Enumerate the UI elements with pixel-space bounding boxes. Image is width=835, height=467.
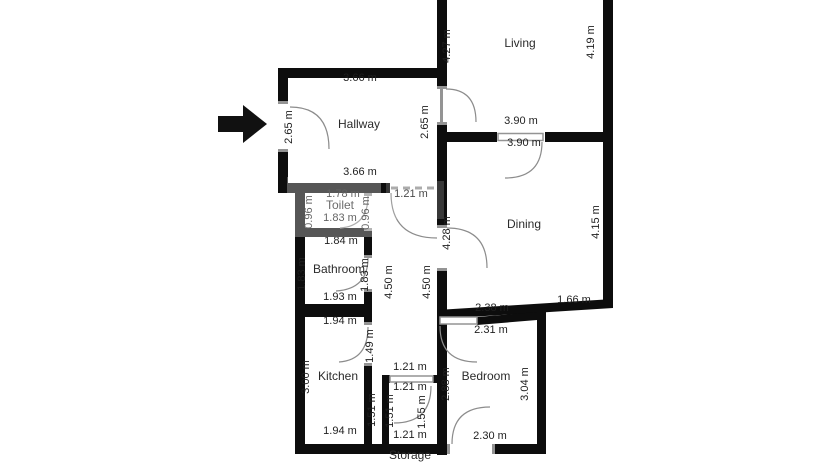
room-label-dining: Dining: [507, 217, 541, 231]
dimension-label: 4.50 m: [421, 265, 433, 299]
entrance-door-jamb: [278, 149, 288, 152]
dimension-label: 1.21 m: [393, 361, 427, 373]
bathroom-door-jamb: [364, 255, 372, 258]
dimension-label: 1.66 m: [557, 294, 591, 306]
dimension-label: 3.66 m: [343, 166, 377, 178]
living-door-jamb: [437, 86, 447, 89]
dimension-label: 2.31 m: [474, 324, 508, 336]
watermark: [287, 177, 444, 237]
dimension-label: 2.65 m: [419, 105, 431, 139]
dimension-label: 1.93 m: [323, 291, 357, 303]
dimension-label: 2.88 m: [440, 367, 452, 401]
dimension-label: 2.65 m: [283, 110, 295, 144]
floor-plan-page: 3.66 m2.65 m2.65 m3.66 m4.27 m4.19 m3.90…: [0, 0, 835, 467]
living-door-arc: [446, 89, 476, 122]
dimension-label: 3.90 m: [507, 137, 541, 149]
dimension-label: 1.94 m: [323, 425, 357, 437]
dimension-label: 2.38 m: [475, 302, 509, 314]
dimension-label: 4.27 m: [441, 29, 453, 63]
floor-plan: 3.66 m2.65 m2.65 m3.66 m4.27 m4.19 m3.90…: [0, 0, 835, 467]
room-label-storage: Storage: [389, 448, 431, 462]
dimension-label: 1.55 m: [416, 395, 428, 429]
bedroom-balcony-door-jamb: [492, 444, 495, 454]
dimension-label: 3.04 m: [519, 367, 531, 401]
dining-door-jamb: [437, 268, 447, 271]
dimension-label: 1.49 m: [364, 329, 376, 363]
living-door-leaf: [440, 89, 443, 122]
dimension-label: 1.21 m: [393, 381, 427, 393]
dimension-label: 3.66 m: [343, 72, 377, 84]
room-label-living: Living: [504, 36, 535, 50]
dimension-label: 1.21 m: [393, 429, 427, 441]
room-label-bathroom: Bathroom: [313, 262, 365, 276]
dimension-label: 1.83 m: [296, 257, 308, 291]
room-label-hallway: Hallway: [338, 117, 380, 131]
room-label-bedroom: Bedroom: [462, 369, 511, 383]
dimension-label: 4.28 m: [441, 216, 453, 250]
dimension-label: 4.19 m: [585, 25, 597, 59]
dining-door-arc: [447, 228, 487, 268]
bedroom-door-leaf: [440, 317, 477, 324]
dimension-label: 1.94 m: [323, 315, 357, 327]
kitchen-door-jamb: [364, 322, 372, 325]
dimension-label: 3.90 m: [504, 115, 538, 127]
room-label-kitchen: Kitchen: [318, 369, 358, 383]
entrance-door-jamb: [278, 101, 288, 104]
bedroom-balcony-door-jamb: [447, 444, 450, 454]
entrance-door-arc: [290, 107, 329, 149]
dimension-label: 1.51 m: [366, 393, 378, 427]
dimension-label: 2.30 m: [473, 430, 507, 442]
dimension-label: 3.00 m: [300, 360, 312, 394]
dimension-label: 4.15 m: [590, 205, 602, 239]
dimension-label: 1.51 m: [384, 394, 396, 428]
entrance-arrow-icon: [218, 105, 267, 143]
living-door-jamb: [437, 122, 447, 125]
dimension-label: 4.50 m: [383, 265, 395, 299]
